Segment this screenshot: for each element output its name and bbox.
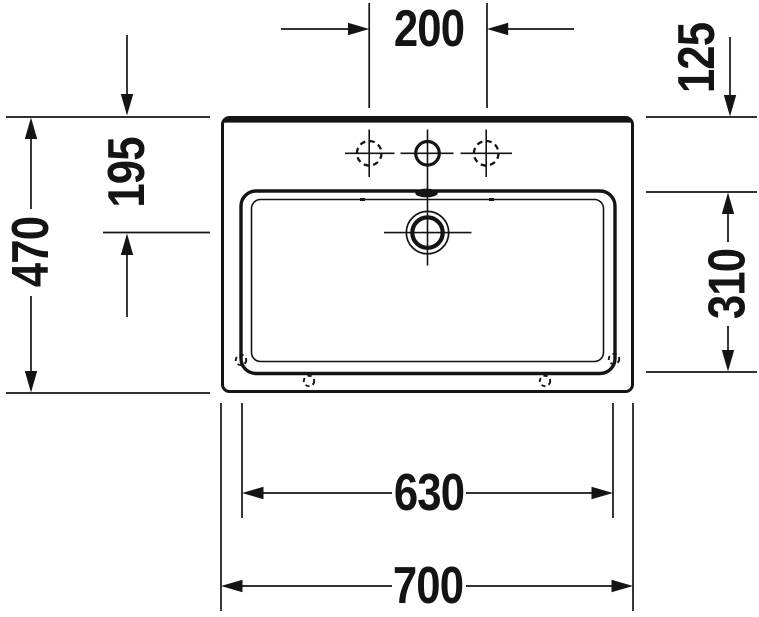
mounting-hole-bottom-right <box>540 376 550 386</box>
arrowhead-right <box>348 23 369 35</box>
dim-tap-hole-spacing: 200 <box>281 0 574 108</box>
overflow-and-drain <box>384 189 472 265</box>
dim-label-310: 310 <box>699 249 756 319</box>
tap-holes <box>345 130 512 191</box>
mounting-hole-bottom-left <box>304 376 314 386</box>
dim-basin-depth: 310 <box>646 117 757 372</box>
arrowhead-up <box>722 193 734 215</box>
dim-basin-width: 630 <box>242 403 613 522</box>
arrowhead-up <box>25 118 37 140</box>
arrowhead-left <box>242 487 264 499</box>
dim-rim-to-drain: 195 <box>98 35 210 317</box>
dim-label-200: 200 <box>394 0 464 57</box>
arrowhead-left <box>221 580 243 592</box>
arrowhead-right <box>592 487 614 499</box>
dim-label-195: 195 <box>98 137 155 208</box>
arrowhead-down <box>25 371 37 393</box>
dim-label-125: 125 <box>668 23 725 94</box>
arrowhead-up <box>121 234 133 256</box>
technical-drawing-canvas: 200 125 195 470 310 <box>0 0 759 617</box>
arrowhead-down <box>121 94 133 116</box>
dim-label-700: 700 <box>393 557 463 614</box>
arrowhead-left <box>487 23 508 35</box>
arrowhead-down <box>724 95 736 117</box>
arrowhead-right <box>612 580 634 592</box>
dim-label-630: 630 <box>394 464 464 521</box>
dim-label-470: 470 <box>2 217 59 287</box>
mounting-holes <box>236 354 619 386</box>
overflow-slot <box>416 189 437 196</box>
dim-rim-to-basin: 125 <box>668 23 736 117</box>
washbasin-plan-drawing: 200 125 195 470 310 <box>0 0 759 617</box>
arrowhead-down <box>722 350 734 372</box>
